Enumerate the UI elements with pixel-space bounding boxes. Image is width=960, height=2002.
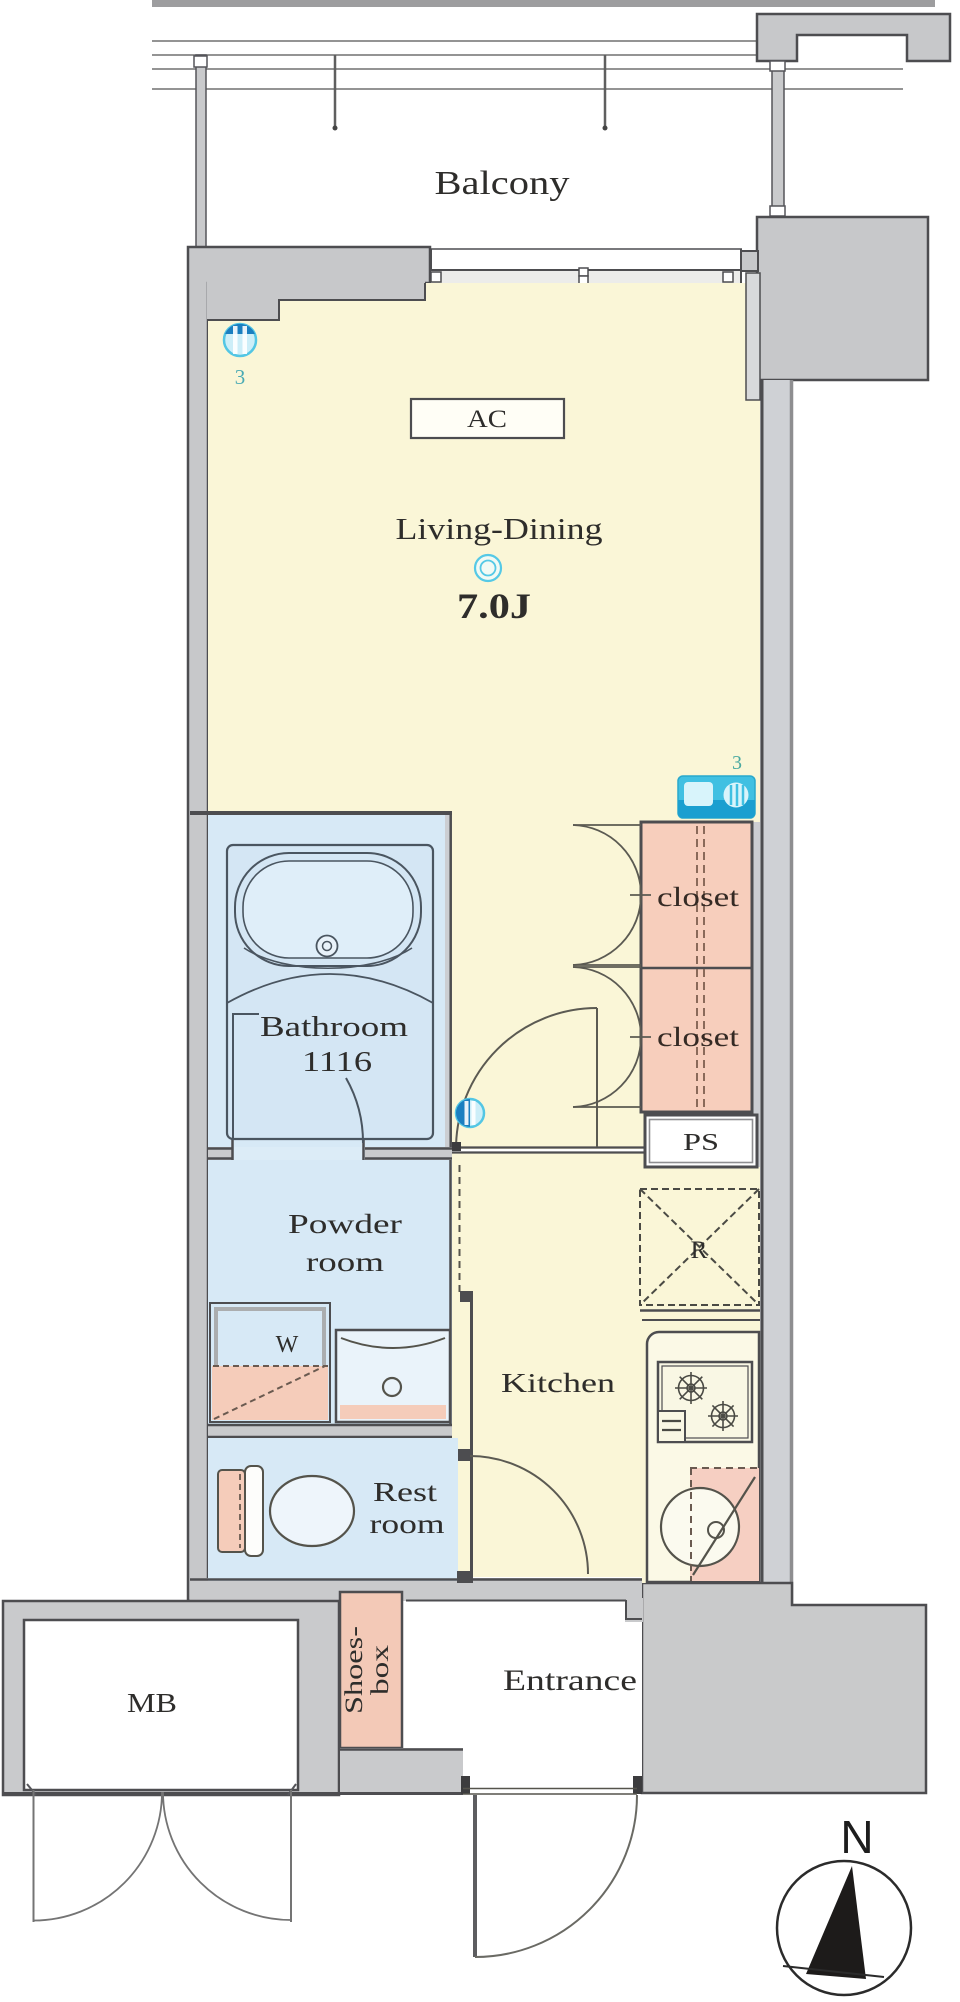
svg-text:N: N	[840, 1811, 873, 1863]
svg-text:room: room	[370, 1509, 445, 1539]
svg-text:closet: closet	[657, 1022, 740, 1052]
svg-text:room: room	[306, 1247, 384, 1277]
svg-text:Kitchen: Kitchen	[501, 1368, 616, 1398]
svg-text:Living-Dining: Living-Dining	[396, 511, 603, 546]
svg-text:Entrance: Entrance	[503, 1664, 637, 1697]
svg-text:AC: AC	[467, 406, 507, 433]
svg-text:closet: closet	[657, 882, 740, 912]
svg-text:Rest: Rest	[373, 1477, 438, 1507]
svg-text:3: 3	[235, 365, 246, 389]
svg-text:MB: MB	[127, 1688, 177, 1718]
svg-text:7.0J: 7.0J	[457, 586, 531, 626]
svg-text:box: box	[367, 1644, 394, 1695]
svg-text:PS: PS	[683, 1130, 719, 1156]
svg-text:Balcony: Balcony	[435, 165, 570, 202]
svg-text:Powder: Powder	[288, 1209, 402, 1239]
svg-text:Bathroom: Bathroom	[260, 1012, 408, 1043]
svg-text:1116: 1116	[302, 1047, 372, 1078]
svg-text:R: R	[691, 1237, 708, 1264]
svg-text:W: W	[276, 1332, 299, 1358]
svg-text:Shoes-: Shoes-	[341, 1626, 368, 1714]
svg-text:3: 3	[732, 752, 742, 774]
